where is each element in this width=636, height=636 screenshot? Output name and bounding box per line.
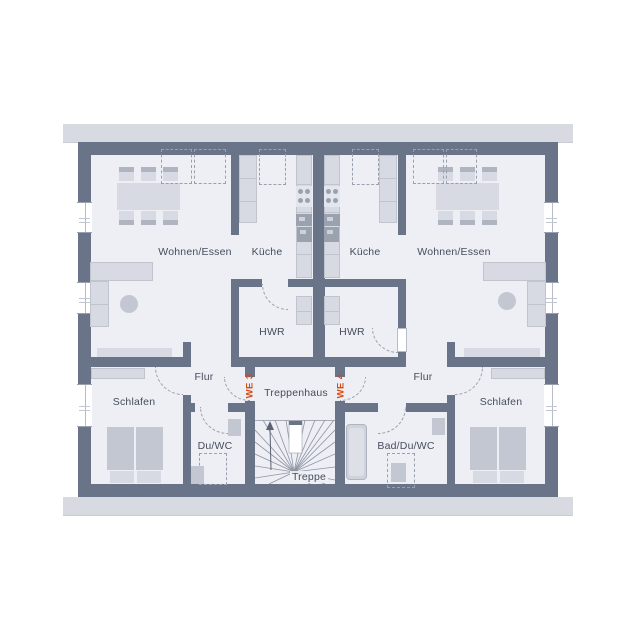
wall-outer-bottom: [78, 484, 558, 497]
bathtub-bad: [346, 424, 367, 480]
wall-stairwell-right: [335, 401, 345, 484]
wall-band-left: [91, 357, 185, 367]
wall-bad-east: [447, 395, 455, 484]
chair: [482, 211, 497, 225]
chair: [119, 167, 134, 181]
room-label-kueche-left: Küche: [252, 246, 283, 258]
wardrobe-left: [91, 368, 145, 379]
wall-hwr-left-north-b: [288, 279, 313, 287]
window-right-2: [544, 282, 559, 314]
wall-outer-right: [545, 142, 558, 497]
skylight-outline: [413, 149, 444, 184]
sofa-right-top: [483, 262, 546, 281]
wall-kitchen-divider-right: [398, 155, 406, 235]
sink-left-basin: [297, 227, 312, 242]
kitchen-counter-left-wall: [239, 155, 257, 223]
wall-duwc-north-b: [228, 403, 255, 412]
wall-outer-top: [78, 142, 558, 155]
bed-left-pillow: [137, 471, 161, 483]
unit-label-we3: WE 3: [245, 374, 256, 399]
coffee-table-right: [498, 292, 516, 310]
room-label-hwr-right: HWR: [339, 326, 365, 338]
wall-bad-north-b: [406, 403, 447, 412]
stove-left: [296, 186, 312, 207]
room-label-hwr-left: HWR: [259, 326, 285, 338]
washer-left: [296, 296, 312, 325]
bed-left-divider: [134, 427, 136, 470]
room-label-treppenhaus: Treppenhaus: [264, 387, 328, 399]
bed-left-pillow: [110, 471, 134, 483]
skylight-outline: [352, 149, 379, 185]
window-left-1: [77, 202, 92, 233]
wc-bad: [391, 463, 406, 482]
wc-duwc: [191, 466, 204, 484]
bed-right-pillow: [500, 471, 524, 483]
chair: [141, 211, 156, 225]
wardrobe-right: [491, 368, 545, 379]
wall-bad-north-a: [335, 403, 378, 412]
skylight-outline: [446, 149, 477, 184]
room-label-kueche-right: Küche: [350, 246, 381, 258]
room-label-treppe: Treppe: [290, 471, 328, 483]
wall-hwr-right-east-a: [398, 279, 406, 328]
room-label-bad: Bad/Du/WC: [377, 440, 434, 452]
room-label-schlafen-right: Schlafen: [480, 396, 522, 408]
skylight-outline: [194, 149, 226, 184]
washbasin-bad: [432, 418, 445, 435]
chair: [163, 211, 178, 225]
sink-right-basin: [324, 227, 339, 242]
roof-eave-bottom: [63, 497, 573, 516]
wall-stairwell-left: [245, 401, 255, 484]
room-label-flur-right: Flur: [414, 371, 433, 383]
wall-band-right: [447, 357, 545, 367]
wall-band-middle: [231, 357, 402, 367]
sink-right: [324, 214, 340, 226]
chair: [438, 211, 453, 225]
sofa-right-side: [527, 281, 546, 327]
kitchen-counter-right-wall: [379, 155, 397, 223]
floor-plan: Wohnen/Essen Küche Küche Wohnen/Essen HW…: [0, 0, 636, 636]
dining-table-left: [117, 183, 180, 210]
window-right-3: [544, 384, 559, 427]
coffee-table-left: [120, 295, 138, 313]
stair-eye: [289, 421, 302, 453]
sideboard-right: [464, 348, 540, 357]
wall-flur-right-upper: [447, 342, 455, 367]
wall-hwr-left-west: [231, 279, 239, 367]
room-label-wohnen-right: Wohnen/Essen: [417, 246, 490, 258]
sofa-left-side: [90, 281, 109, 327]
room-label-duwc: Du/WC: [198, 440, 233, 452]
sink-left: [296, 214, 312, 226]
door-leaf-hwr-right: [397, 328, 407, 352]
room-label-wohnen-left: Wohnen/Essen: [158, 246, 231, 258]
dining-table-right: [436, 183, 499, 210]
wall-flur-left-upper: [183, 342, 191, 367]
wall-kitchen-divider-left: [231, 155, 239, 235]
sideboard-left: [97, 348, 172, 357]
sofa-left-top: [90, 262, 153, 281]
washer-right: [324, 296, 340, 325]
bed-right-divider: [497, 427, 499, 470]
chair: [119, 211, 134, 225]
bed-right-pillow: [473, 471, 497, 483]
chair: [460, 211, 475, 225]
wall-hwr-right-north: [322, 279, 402, 287]
unit-label-we4: WE 4: [336, 374, 347, 399]
skylight-outline: [259, 149, 286, 185]
room-label-flur-left: Flur: [195, 371, 214, 383]
room-label-schlafen-left: Schlafen: [113, 396, 155, 408]
window-right-1: [544, 202, 559, 233]
chair: [482, 167, 497, 181]
wall-duwc-north-a: [183, 403, 195, 412]
roof-eave-top: [63, 124, 573, 143]
window-left-3: [77, 384, 92, 427]
washbasin-duwc: [228, 419, 241, 436]
wall-hwr-left-north-a: [231, 279, 262, 287]
skylight-outline: [161, 149, 192, 184]
chair: [141, 167, 156, 181]
stove-right: [324, 186, 340, 207]
